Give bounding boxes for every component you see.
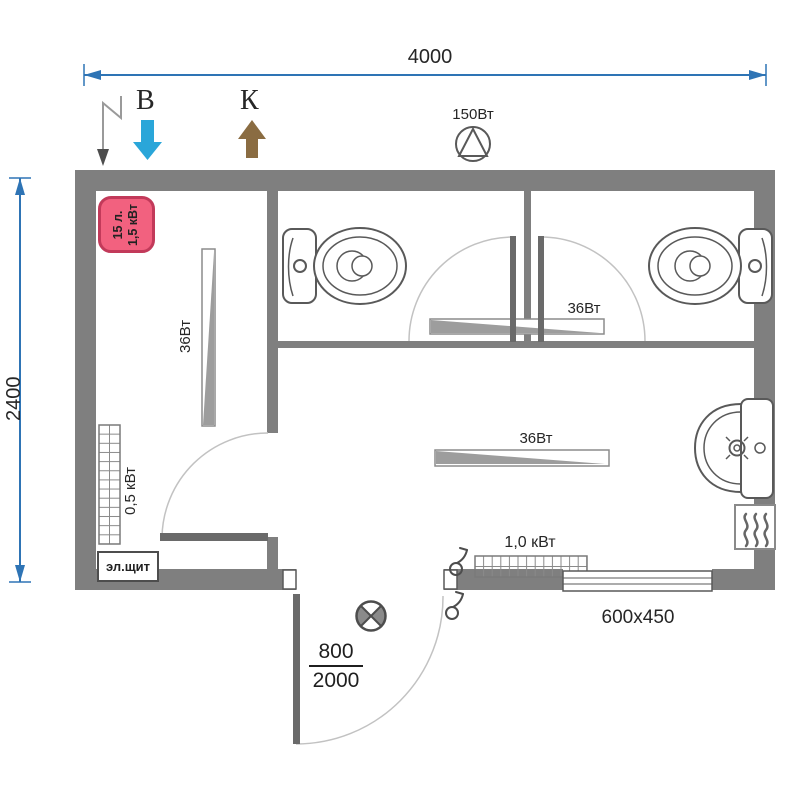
door-arc-utility <box>162 433 268 537</box>
dim-arrow-top <box>15 178 25 195</box>
fluorescent-lamp-wc-icon <box>430 319 604 334</box>
radiator-utility-icon <box>99 425 120 544</box>
dim-arrow-right <box>749 70 766 80</box>
dim-width-label: 4000 <box>385 46 475 69</box>
sewage-label: К <box>240 85 259 117</box>
wall-top <box>75 170 775 191</box>
switch-outside-icon <box>446 592 463 619</box>
door-leaf-utility <box>160 533 268 541</box>
lamp-utility-label: 36Вт <box>177 320 194 353</box>
sewage-arrow-icon <box>238 120 266 158</box>
door-leaf-entrance <box>293 594 300 744</box>
boiler-power-label: 1,5 кВт <box>127 203 141 245</box>
power-input-icon <box>97 96 121 166</box>
water-supply-label: В <box>136 85 155 117</box>
water-heater: 15 л. 1,5 кВт <box>98 196 155 253</box>
dim-arrow-left <box>84 70 101 80</box>
window-icon <box>563 571 712 591</box>
fan-power-label: 150Вт <box>445 106 501 123</box>
dim-arrow-bottom <box>15 565 25 582</box>
lamp-wc-label: 36Вт <box>560 300 608 317</box>
ceiling-lamp-icon <box>357 602 386 631</box>
toilet-left-icon <box>283 228 406 304</box>
lamp-main-label: 36Вт <box>512 430 560 447</box>
fan-icon <box>456 127 490 161</box>
dim-height-label: 2400 <box>3 377 26 422</box>
wall-inner-vertical-upper <box>267 191 278 433</box>
water-supply-arrow-icon <box>133 120 162 160</box>
sink-icon <box>695 399 773 498</box>
heater-utility-label: 0,5 кВт <box>122 467 139 515</box>
door-size-label: 800 2000 <box>309 640 363 693</box>
heater-main-label: 1,0 кВт <box>494 534 566 552</box>
door-width-label: 800 <box>309 640 363 667</box>
electrical-panel-label: эл.щит <box>106 559 150 574</box>
floor-plan: 4000 2400 В К 150Вт 15 л. 1,5 кВт 36Вт 0… <box>0 0 800 800</box>
boiler-volume-label: 15 л. <box>112 210 126 239</box>
window-size-label: 600x450 <box>592 607 684 629</box>
fluorescent-lamp-utility-icon <box>202 249 215 426</box>
plan-drawing <box>0 0 800 800</box>
toilet-right-icon <box>649 228 772 304</box>
door-leaf-wc-right <box>538 236 544 342</box>
door-height-label: 2000 <box>309 667 363 693</box>
hand-dryer-icon <box>735 505 775 549</box>
fluorescent-lamp-main-icon <box>435 450 609 466</box>
electrical-panel: эл.щит <box>97 551 159 582</box>
wall-left <box>75 170 96 590</box>
wall-inner-vertical-lower <box>267 537 278 569</box>
entrance-door-jambs <box>283 570 457 589</box>
door-leaf-wc-left <box>510 236 516 342</box>
wall-bottom-right <box>712 569 775 590</box>
wall-inner-horizontal <box>278 341 754 348</box>
